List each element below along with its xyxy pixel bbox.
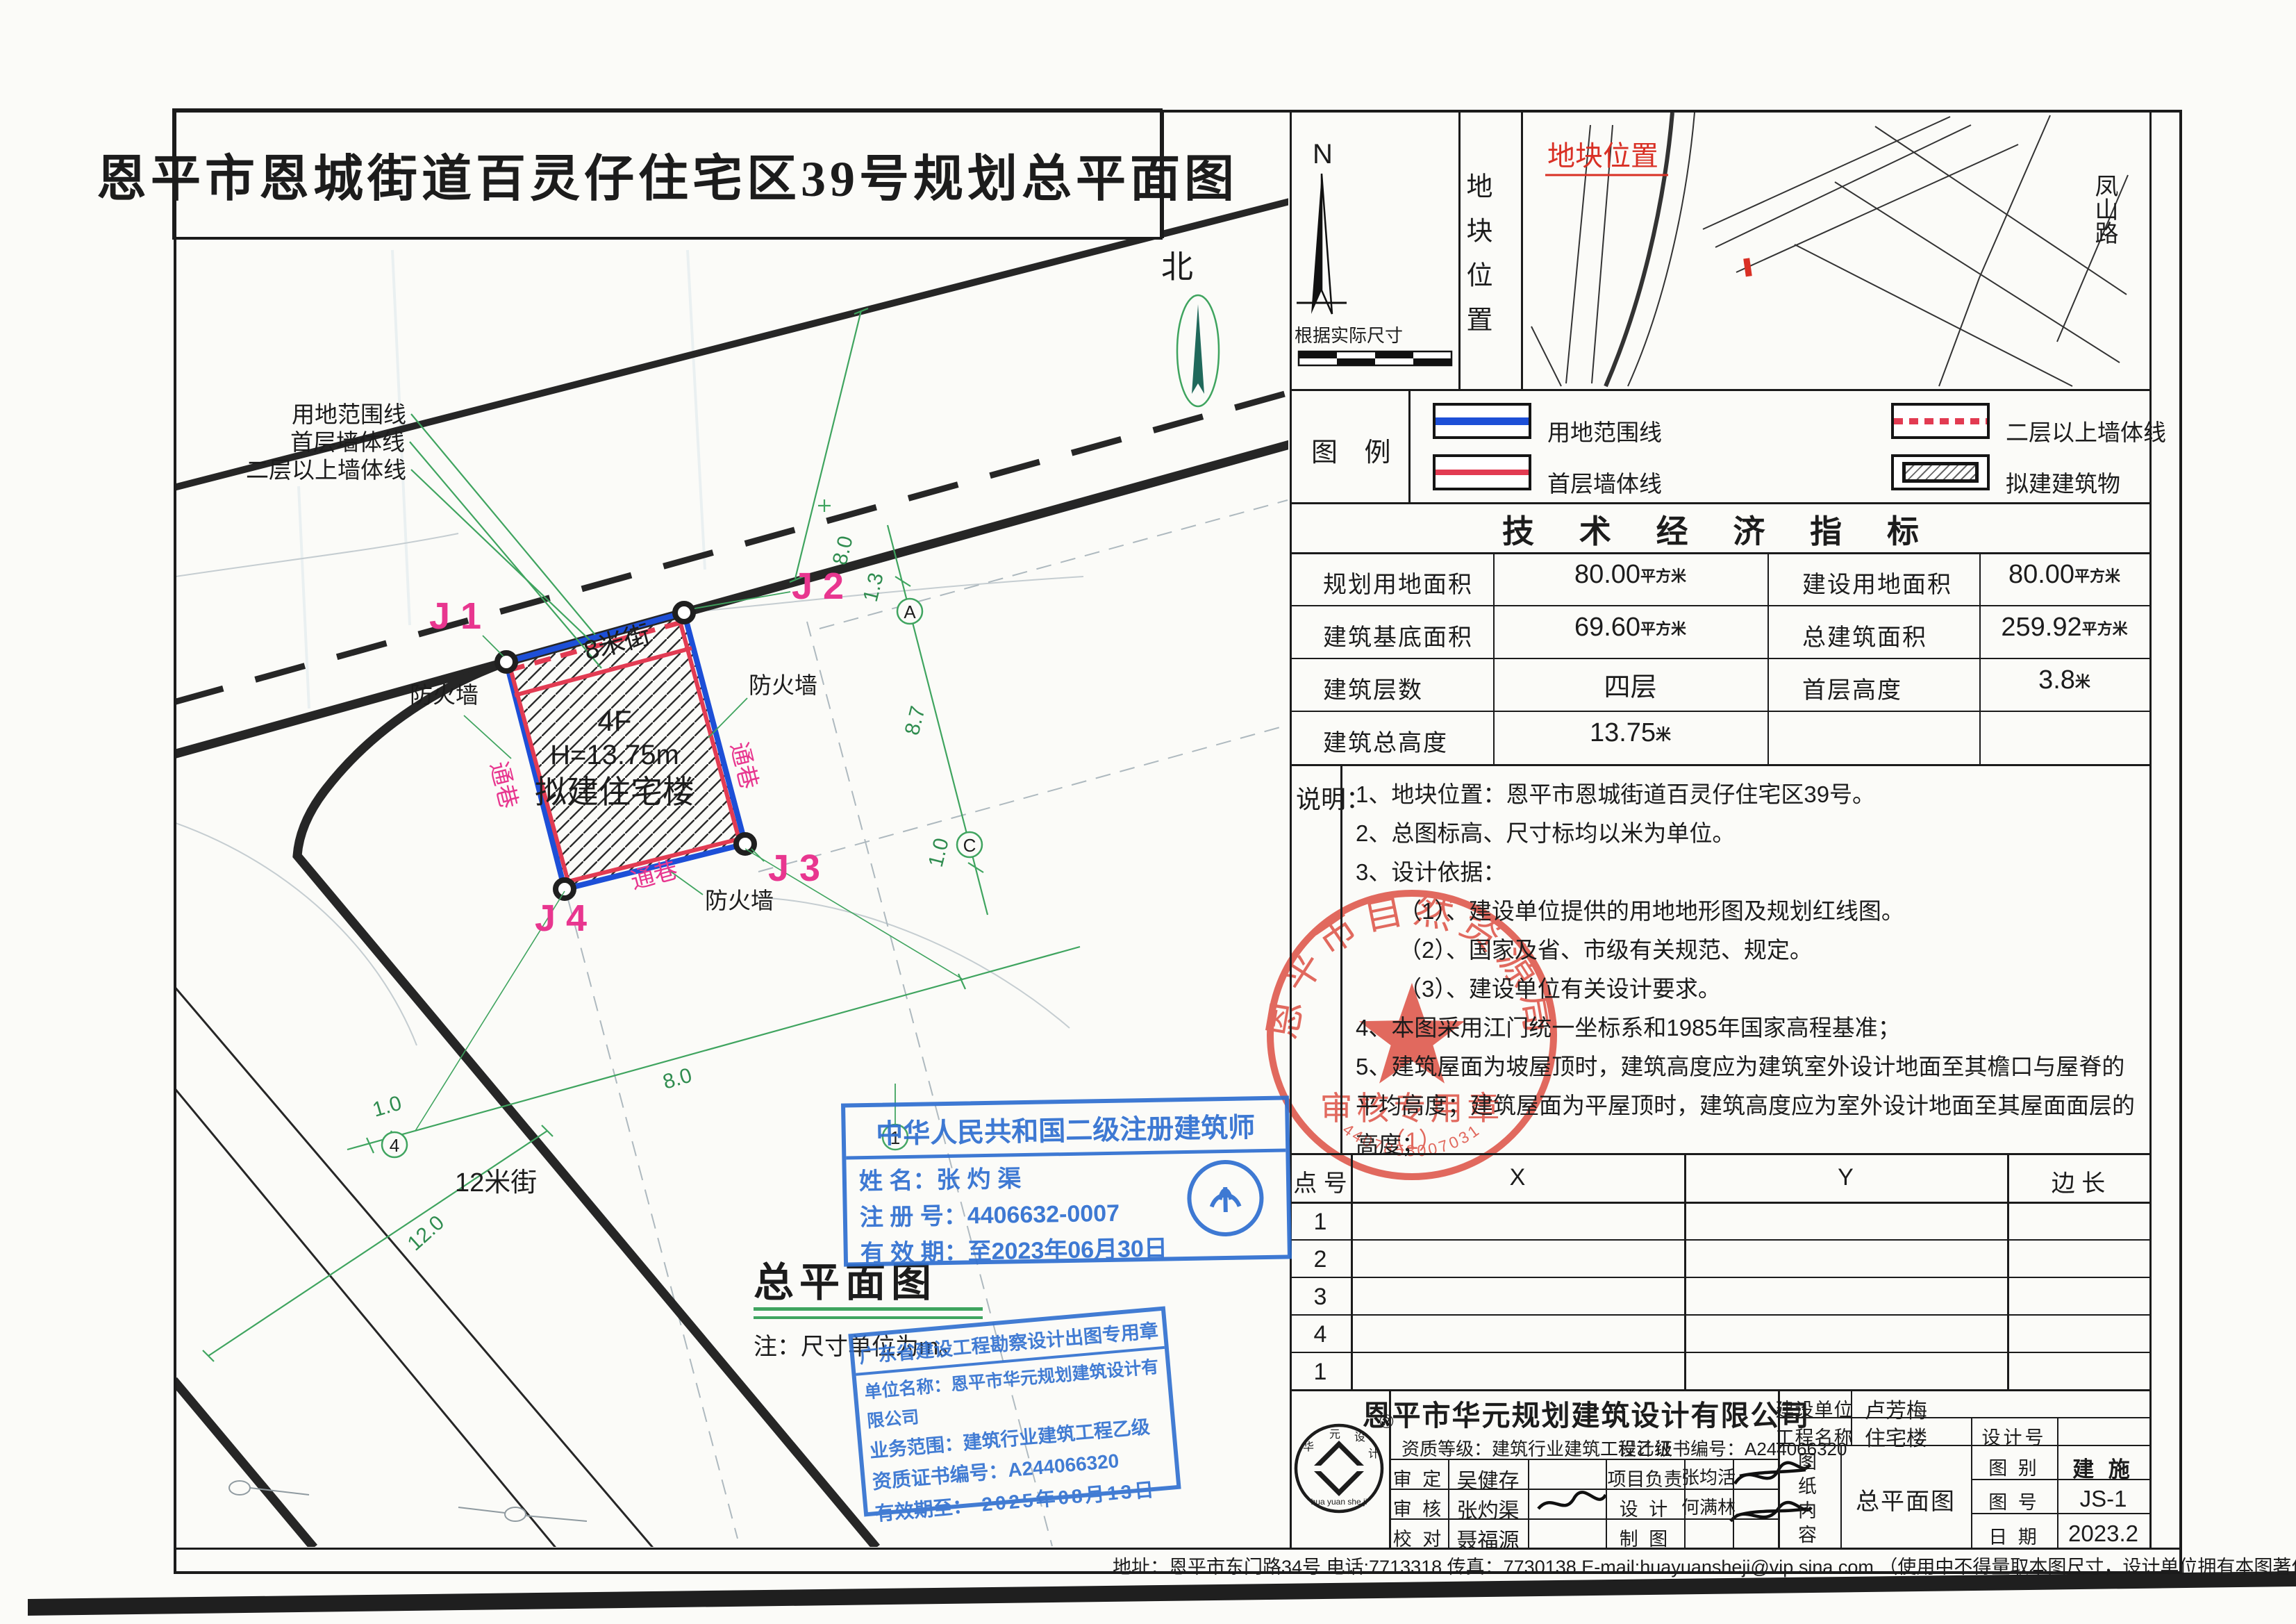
label-j4: J 4 (535, 897, 587, 939)
content-label: 图纸内容 (1792, 1452, 1820, 1549)
north-arrow: N 根据实际尺寸 (1295, 139, 1451, 365)
north-n: N (1313, 139, 1333, 169)
coords-row-1: 1 (1290, 1209, 1351, 1236)
svg-text:防火墙: 防火墙 (410, 682, 479, 708)
axis-c: C (963, 835, 976, 856)
client-label: 建设单位 (1778, 1395, 1851, 1422)
content-value: 总平面图 (1840, 1482, 1971, 1516)
corner-j4 (556, 880, 574, 898)
dim-1.0-bottom: 1.0 (370, 1092, 404, 1122)
architect-emblem (1183, 1156, 1267, 1241)
coords-header-y: Y (1684, 1164, 2007, 1191)
coords-row-4: 4 (1290, 1321, 1351, 1348)
legend-swatch-upper-wall (1891, 403, 1990, 439)
svg-text:华: 华 (1303, 1441, 1314, 1453)
company-name: 恩平市华元规划建筑设计有限公司 (1396, 1392, 1777, 1434)
corner-j3 (736, 835, 754, 853)
legend-swatch-first-wall (1433, 454, 1531, 490)
building-name: 拟建住宅楼 (535, 774, 694, 810)
svg-text:元: 元 (1329, 1429, 1340, 1441)
coords-row-3: 3 (1290, 1284, 1351, 1311)
legend-swatch-boundary (1433, 403, 1531, 439)
page-title: 恩平市恩城街道百灵仔住宅区39号规划总平面图 (174, 111, 1161, 237)
road-12m (174, 662, 876, 1548)
coords-header-len: 边 长 (2007, 1164, 2149, 1198)
architect-stamp: 中华人民共和国二级注册建筑师 姓 名：张灼渠 注 册 号：4406632-000… (841, 1095, 1292, 1266)
street-12m-label: 12米街 (455, 1168, 537, 1198)
red-line (1436, 470, 1529, 475)
label-first-floor-wall: 首层墙体线 (290, 429, 405, 455)
dim-1.3: 1.3 (859, 570, 888, 604)
building-floors: 4F (597, 704, 631, 737)
design-no-label: 设计号 (1971, 1423, 2057, 1450)
indicators-title: 技 术 经 济 指 标 (1290, 506, 2149, 552)
label-j2: J 2 (792, 565, 844, 607)
coords-row-5: 1 (1290, 1359, 1351, 1386)
svg-text:防火墙: 防火墙 (749, 672, 817, 698)
gd-design-stamp: 广东省建设工程勘察设计出图专用章 单位名称：恩平市华元规划建筑设计有限公司 业务… (848, 1307, 1181, 1517)
sheet-footer: 地址：恩平市东门路34号 电话:7713318 传真：7730138 E-mai… (1113, 1552, 2296, 1579)
frame-right (2179, 110, 2182, 1574)
svg-text:通巷: 通巷 (485, 759, 522, 811)
location-map-labels: 地块位置 凤山路 (1545, 141, 2118, 276)
scale-note: 根据实际尺寸 (1295, 325, 1403, 346)
dim-8.7: 8.7 (901, 704, 930, 737)
coords-header-point: 点 号 (1290, 1164, 1351, 1198)
corner-j2 (675, 604, 693, 622)
label-j3: J 3 (768, 847, 820, 889)
project-name: 住宅楼 (1865, 1421, 1927, 1452)
line-type-labels: 用地范围线 首层墙体线 二层以上墙体线 (246, 401, 406, 483)
label-j1: J 1 (429, 595, 481, 637)
dim-12.0: 12.0 (404, 1211, 449, 1256)
coords-header-x: X (1351, 1164, 1684, 1191)
building-height: H=13.75m (550, 740, 679, 770)
location-cell-label: 地块位置 (1471, 172, 1501, 350)
notes-body: 1、地块位置：恩平市恩城街道百灵仔住宅区39号。 2、总图标高、尺寸标均以米为单… (1356, 775, 2144, 1164)
blue-line (1436, 417, 1529, 425)
map-plot-marker (1743, 258, 1752, 276)
label-upper-wall: 二层以上墙体线 (246, 457, 406, 483)
label-boundary-line: 用地范围线 (292, 401, 406, 427)
map-road-label: 凤山路 (2091, 174, 2118, 245)
coords-row-2: 2 (1290, 1246, 1351, 1273)
scale-bar (1299, 351, 1451, 365)
corner-j1 (497, 653, 515, 671)
plan-compass: 北 (1161, 249, 1219, 406)
svg-text:防火墙: 防火墙 (705, 888, 774, 913)
legend-title: 图 例 (1311, 431, 1401, 469)
frame-left (174, 110, 176, 1574)
project-label: 工程名称 (1778, 1423, 1851, 1450)
north-char: 北 (1161, 249, 1193, 285)
hatch-box (1902, 462, 1979, 483)
client-name: 卢芳梅 (1865, 1393, 1927, 1424)
axis-a: A (904, 602, 916, 622)
svg-text:计: 计 (1368, 1448, 1379, 1460)
legend-swatch-building (1891, 454, 1990, 490)
red-dashed-line (1894, 418, 1987, 424)
map-plot-label: 地块位置 (1547, 141, 1658, 172)
dim-8.0-bottom: 8.0 (660, 1064, 694, 1094)
axis-4: 4 (390, 1135, 399, 1156)
drawing-sheet: A C 4 1 8.0 1.3 8.7 1.0 1.0 8.0 12.0 8米街… (0, 0, 2296, 1624)
svg-text:hua yuan she ji: hua yuan she ji (1311, 1497, 1367, 1507)
dim-1.0-right: 1.0 (924, 836, 954, 869)
